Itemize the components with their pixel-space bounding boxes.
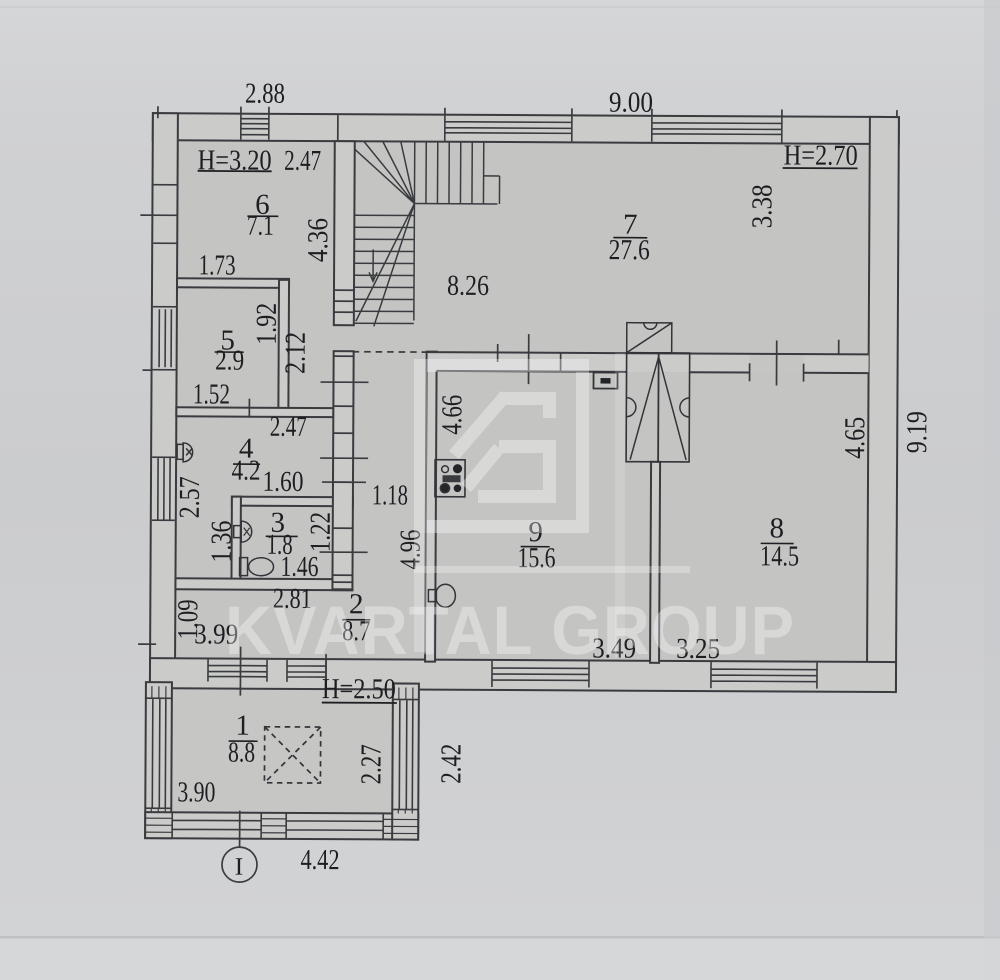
svg-text:1.60: 1.60	[262, 466, 303, 498]
svg-text:2.47: 2.47	[270, 411, 307, 443]
svg-text:2.27: 2.27	[355, 744, 387, 784]
svg-text:1.52: 1.52	[193, 378, 230, 410]
svg-text:KVARTAL GROUP: KVARTAL GROUP	[225, 592, 795, 669]
svg-text:9.00: 9.00	[609, 87, 653, 119]
svg-text:1.92: 1.92	[251, 303, 283, 345]
svg-text:9.19: 9.19	[901, 411, 933, 453]
svg-text:8.8: 8.8	[228, 737, 255, 769]
svg-text:4.42: 4.42	[300, 844, 339, 876]
svg-text:2.57: 2.57	[174, 476, 206, 518]
svg-text:1.36: 1.36	[206, 520, 238, 562]
svg-text:H=2.70: H=2.70	[784, 139, 858, 171]
svg-text:1.46: 1.46	[280, 551, 318, 583]
svg-text:2.88: 2.88	[245, 78, 285, 110]
svg-text:2.42: 2.42	[435, 744, 467, 784]
svg-text:4.66: 4.66	[436, 395, 468, 435]
svg-text:4.2: 4.2	[231, 455, 260, 487]
svg-text:3.90: 3.90	[177, 776, 215, 808]
svg-text:14.5: 14.5	[760, 540, 799, 572]
svg-text:2.47: 2.47	[284, 145, 321, 177]
svg-text:I: I	[235, 854, 243, 881]
svg-text:1.22: 1.22	[305, 512, 337, 552]
svg-text:1.18: 1.18	[372, 479, 408, 511]
svg-text:3.38: 3.38	[746, 184, 778, 228]
svg-text:7.1: 7.1	[247, 210, 274, 242]
svg-text:1.73: 1.73	[199, 249, 236, 281]
svg-text:27.6: 27.6	[609, 234, 650, 266]
svg-text:4.65: 4.65	[839, 417, 871, 459]
svg-text:8.26: 8.26	[447, 270, 489, 302]
svg-text:4.36: 4.36	[302, 218, 334, 262]
svg-text:2.9: 2.9	[215, 345, 244, 377]
svg-text:H=2.50: H=2.50	[322, 673, 396, 705]
svg-text:2.12: 2.12	[280, 332, 312, 374]
